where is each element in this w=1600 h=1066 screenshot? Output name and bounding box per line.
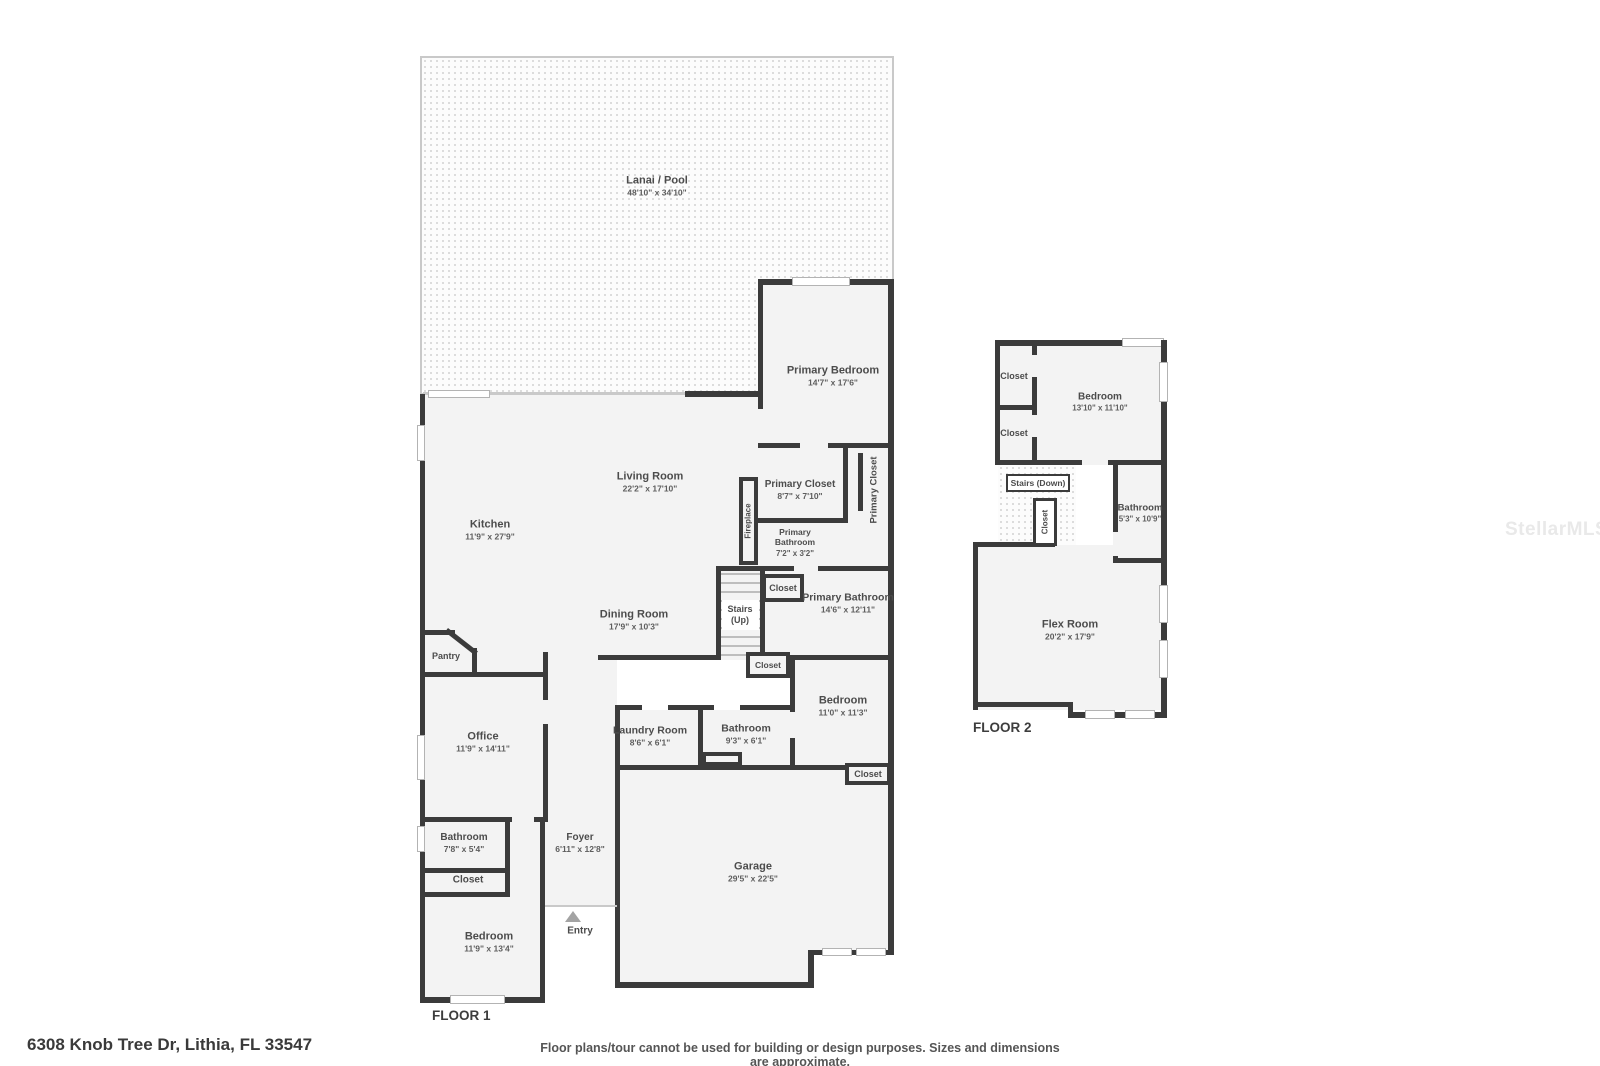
garage-door-marker [856,948,886,956]
wall-segment [858,453,863,511]
wall-segment [758,518,848,523]
stairs-down-label-box [1006,474,1070,492]
floor2-title: FLOOR 2 [973,720,1032,735]
wall-segment [758,279,763,409]
garage-area [620,770,888,955]
primary-closet-area [758,448,888,568]
garage-area-lower [620,950,810,984]
door-opening [1032,415,1037,437]
wall-segment [615,982,814,988]
door-opening [714,705,740,710]
wall-segment [843,448,848,523]
window-marker [450,995,505,1004]
wall-segment [973,542,978,710]
wall-segment [790,655,795,765]
wall-segment [995,340,1000,465]
wall-segment [1113,558,1167,563]
wall-segment [420,868,510,873]
wall-segment [973,702,1073,707]
property-address: 6308 Knob Tree Dr, Lithia, FL 33547 [27,1035,312,1055]
door-opening [790,712,795,738]
wall-segment [505,817,510,897]
wall-segment [685,391,758,397]
stairs-up-label-box [722,600,759,630]
stellar-mls-watermark: StellarMLS [1505,519,1600,541]
utility-block [702,752,742,766]
wall-segment [540,817,545,1002]
wall-segment [598,655,721,660]
fireplace-block [739,477,758,565]
office-wing-area [423,660,543,1000]
window-marker [1122,338,1164,347]
door-opening [1032,355,1037,377]
bedroom2-area [790,655,888,765]
window-marker [417,735,425,780]
wall-segment [615,705,620,987]
wall-segment [995,460,1082,465]
window-marker [792,277,850,286]
wall-segment [543,652,548,822]
closet-garage-box [845,763,891,785]
door-opening [794,566,818,571]
door-opening [800,443,828,448]
wall-segment [420,394,425,1002]
wall-segment [420,892,510,897]
flex-room-area [973,545,1167,710]
garage-door-marker [822,948,852,956]
entry-arrow-icon [565,911,581,922]
window-marker [1159,640,1168,678]
floor2-bathroom-area [1113,465,1167,563]
floorplan-canvas: Lanai / Pool 48'10" x 34'10" Primary Bed… [0,0,1600,1066]
primary-bedroom-area [758,285,888,443]
wall-segment [995,405,1037,410]
window-marker [417,425,425,461]
window-marker [1125,710,1155,719]
window-marker [1159,585,1168,623]
door-opening [512,817,534,822]
closet-hall-box [762,574,804,602]
entry-label: Entry [567,926,593,937]
window-marker [417,826,425,852]
door-opening [1113,532,1118,556]
entry-threshold [545,905,617,907]
closet-stairs-box [746,652,790,678]
window-marker [1085,710,1115,719]
door-opening [642,705,668,710]
disclaimer-text: Floor plans/tour cannot be used for buil… [540,1041,1060,1066]
floor1-title: FLOOR 1 [432,1008,491,1023]
great-room-area [423,395,758,660]
door-opening [543,700,548,724]
wall-segment [790,655,894,660]
closet-stairs2-box [1033,498,1057,546]
hall-foyer-area [543,660,617,907]
window-marker [428,390,490,398]
wall-segment [716,566,721,660]
wall-segment [888,279,894,955]
window-marker [1159,362,1168,402]
wall-segment [420,672,548,677]
